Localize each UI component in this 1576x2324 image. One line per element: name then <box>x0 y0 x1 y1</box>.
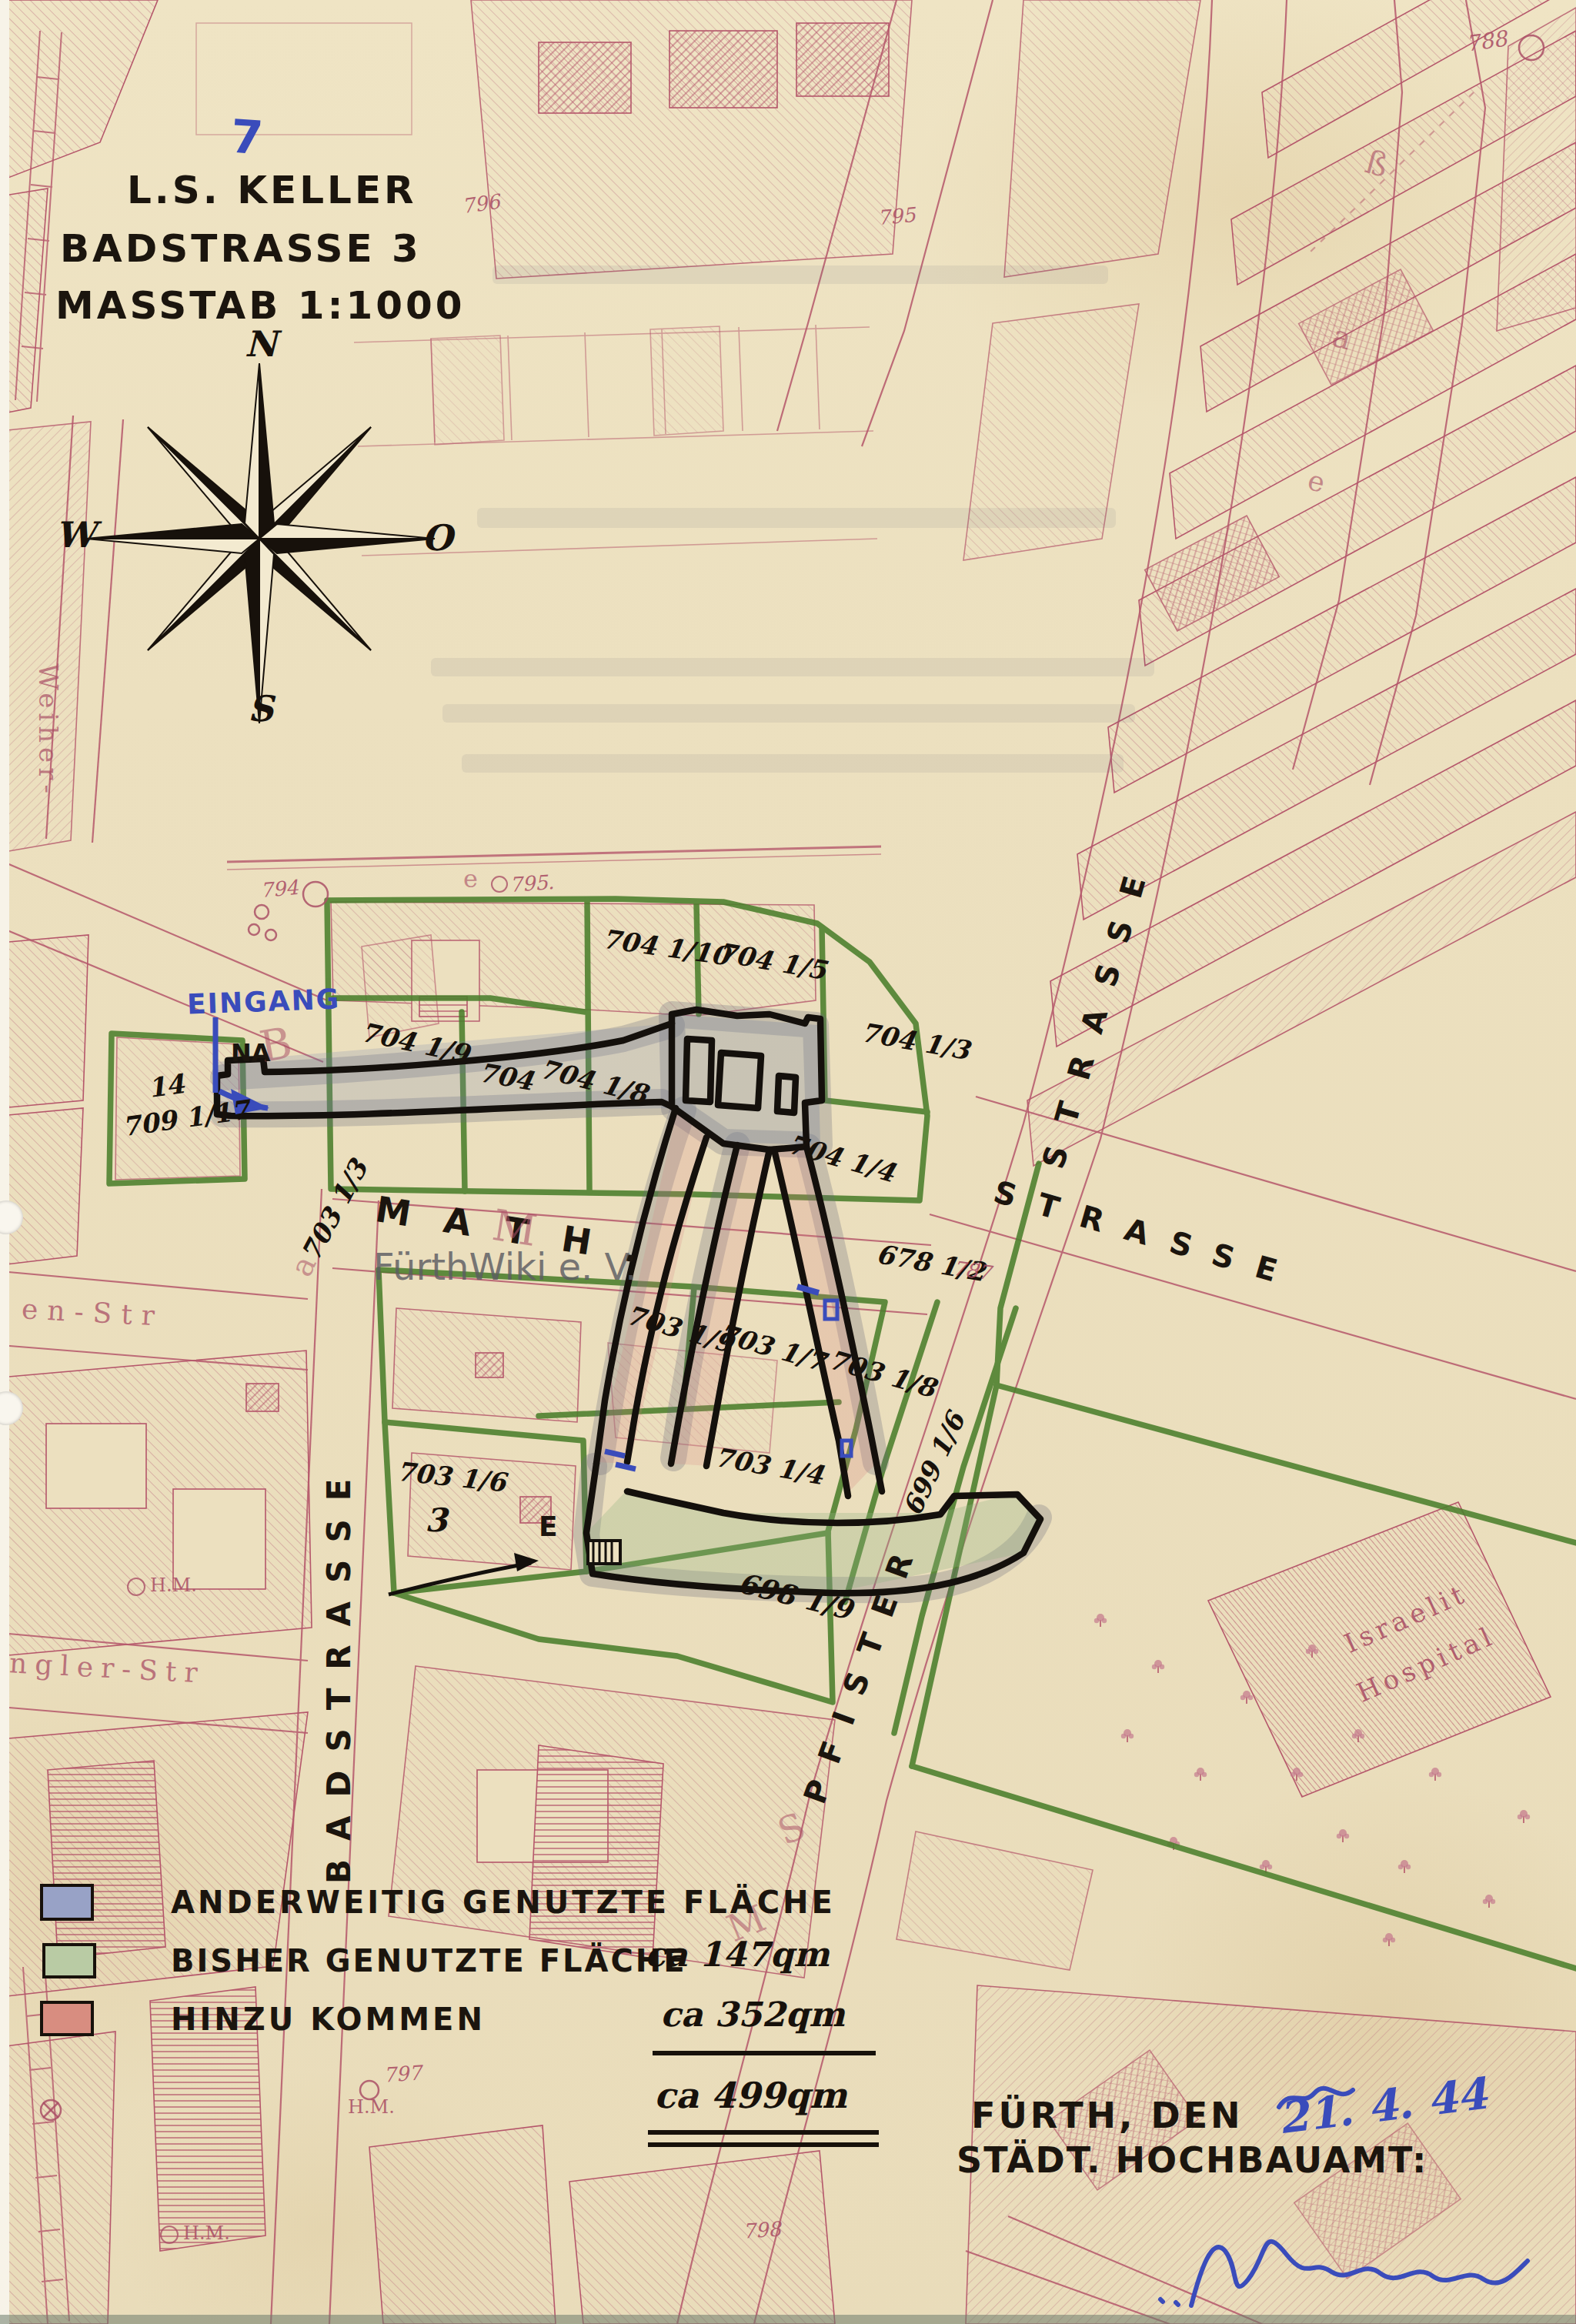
page-edge <box>0 0 9 2324</box>
legend-total-underline2 <box>648 2142 879 2147</box>
map-number-788: 788 <box>1464 28 1508 55</box>
entrance-label: EINGANG <box>186 986 340 1019</box>
map-number-787: 787 <box>951 1258 992 1284</box>
map-number-794: 794 <box>259 877 299 900</box>
footer-city-line: FÜRTH, DEN <box>971 2098 1244 2133</box>
bleedthrough-bar <box>442 704 1135 723</box>
survey-mark-hm2: H.M. <box>348 2098 395 2116</box>
compass-label-north: N <box>245 326 277 362</box>
survey-circle <box>160 2225 179 2244</box>
street-label-badstrasse: BADSTRASSE <box>323 1461 356 1884</box>
survey-mark-hm3: H.M. <box>150 1576 197 1594</box>
survey-mark-hm1: H.M. <box>183 2224 230 2242</box>
compass-label-west: W <box>55 517 95 553</box>
legend-swatch-bisher <box>42 1943 96 1978</box>
legend-total-underline <box>648 2130 879 2135</box>
street-ghost-letter-e: e <box>463 866 478 891</box>
bleedthrough-bar <box>477 508 1116 528</box>
legend-label-bisher: BISHER GENUTZTE FLÄCHE <box>171 1945 687 1976</box>
bleedthrough-bar <box>492 265 1108 284</box>
legend-total: ca 499qm <box>654 2078 847 2113</box>
page-number: 7 <box>229 113 265 162</box>
street-label-en-str: en-Str <box>21 1295 165 1331</box>
legend-swatch-anderweitig <box>40 1884 94 1921</box>
legend-label-anderweitig: ANDERWEITIG GENUTZTE FLÄCHE <box>171 1887 836 1918</box>
entrance-stair-icon <box>588 1541 620 1564</box>
map-number-795a: 795. <box>509 872 555 895</box>
map-number-795b: 795 <box>876 205 917 228</box>
map-number-797: 797 <box>382 2062 422 2085</box>
title-owner: L.S. KELLER <box>127 171 417 209</box>
legend-label-hinzu: HINZU KOMMEN <box>171 2004 486 2035</box>
compass-label-south: S <box>248 691 273 726</box>
page-edge-shadow <box>0 2315 1576 2324</box>
na-label: NA <box>231 1040 271 1065</box>
survey-circle <box>127 1578 145 1596</box>
legend-value-bisher: ca 147qm <box>645 1938 830 1972</box>
legend-swatch-hinzu <box>40 2001 94 2036</box>
footer-office-line: STÄDT. HOCHBAUAMT: <box>957 2142 1427 2178</box>
bleedthrough-bar <box>462 754 1124 773</box>
survey-circle <box>491 876 508 893</box>
title-address: BADSTRASSE 3 <box>60 229 422 268</box>
bleedthrough-bar <box>431 658 1154 676</box>
title-scale: MASSTAB 1:1000 <box>55 286 466 325</box>
entrance-e-label: E <box>539 1513 558 1541</box>
street-label-weiher: Weiher- <box>35 663 62 798</box>
watermark: FürthWiki e. V. <box>373 1248 636 1285</box>
legend-divider <box>653 2051 876 2055</box>
map-number-796: 796 <box>460 192 501 217</box>
parcel-label-14: 14 <box>146 1070 186 1101</box>
compass-rose-icon <box>86 363 435 723</box>
compass-label-east: O <box>422 520 452 556</box>
legend-value-hinzu: ca 352qm <box>660 1998 845 2032</box>
parcel-label-703-1-6-number: 3 <box>425 1504 447 1537</box>
map-number-798: 798 <box>742 2219 781 2241</box>
